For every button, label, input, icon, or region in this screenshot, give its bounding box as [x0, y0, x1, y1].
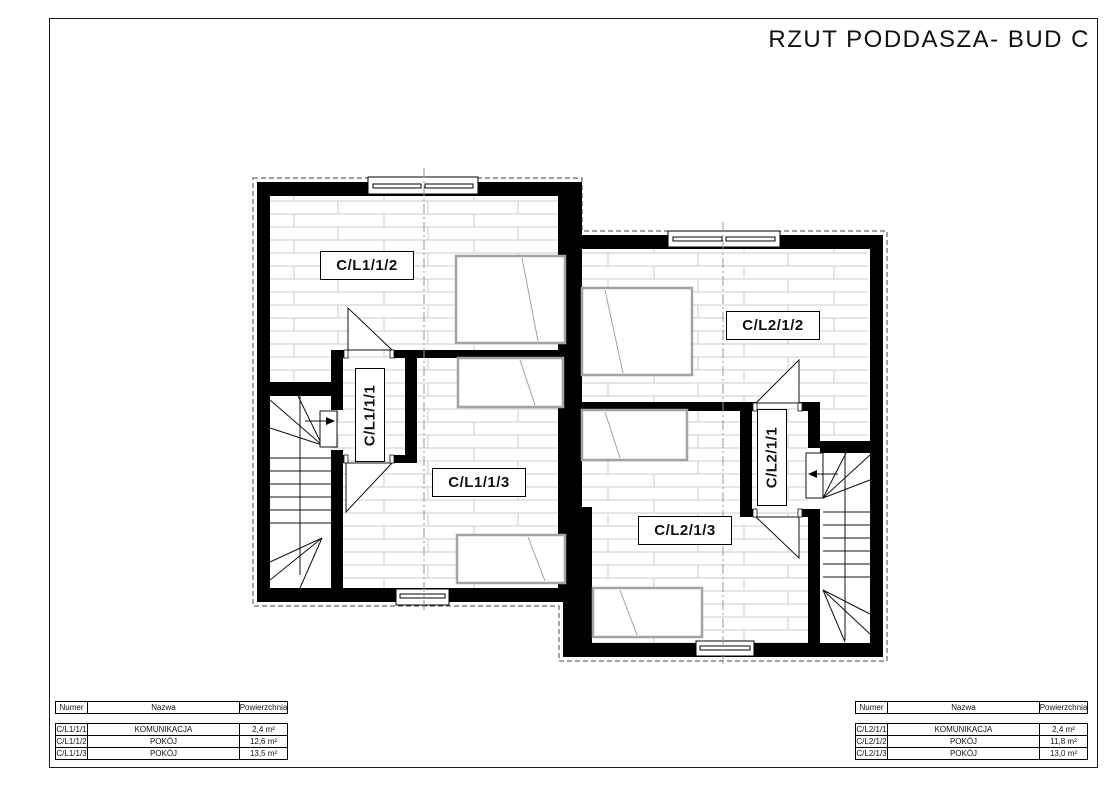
room-number: C/L1/1/3 — [55, 747, 88, 760]
column-header: Powierzchnia — [1039, 701, 1088, 714]
area-table-right: Numer Nazwa Powierzchnia C/L2/1/1 KOMUNI… — [855, 701, 1088, 760]
room-label-l1-3: C/L1/1/3 — [432, 468, 526, 497]
room-label-text: C/L2/1/3 — [654, 522, 716, 539]
room-label-l2-3: C/L2/1/3 — [638, 516, 732, 545]
bed — [458, 358, 563, 407]
table-header-row: Numer Nazwa Powierzchnia — [55, 701, 288, 714]
room-area: 13,5 m² — [239, 747, 288, 760]
window-right-bottom — [696, 641, 754, 656]
table-header-row: Numer Nazwa Powierzchnia — [855, 701, 1088, 714]
table-row: C/L2/1/3 POKÓJ 13,0 m² — [855, 747, 1088, 760]
bed — [457, 535, 565, 583]
room-label-l1-2: C/L1/1/2 — [320, 251, 414, 280]
column-header: Numer — [55, 701, 88, 714]
room-label-text: C/L1/1/2 — [336, 257, 398, 274]
room-name: POKÓJ — [87, 747, 240, 760]
window-right-top — [668, 231, 780, 247]
room-label-l2-2: C/L2/1/2 — [726, 311, 820, 340]
column-header: Powierzchnia — [239, 701, 288, 714]
window-left-top — [368, 177, 478, 194]
column-header: Numer — [855, 701, 888, 714]
room-label-l1-1: C/L1/1/1 — [355, 368, 385, 462]
window-left-bottom — [396, 589, 449, 605]
bed — [593, 588, 702, 637]
room-number: C/L2/1/3 — [855, 747, 888, 760]
drawing-sheet: RZUT PODDASZA- BUD C — [0, 0, 1113, 786]
bed — [582, 410, 687, 460]
room-label-text: C/L1/1/3 — [448, 474, 510, 491]
column-header: Nazwa — [887, 701, 1040, 714]
area-table-left: Numer Nazwa Powierzchnia C/L1/1/1 KOMUNI… — [55, 701, 288, 760]
room-label-text: C/L1/1/1 — [362, 384, 379, 446]
room-label-text: C/L2/1/1 — [764, 427, 781, 489]
floor-plan — [0, 0, 1113, 786]
room-name: POKÓJ — [887, 747, 1040, 760]
room-label-l2-1: C/L2/1/1 — [757, 409, 787, 506]
bed — [456, 256, 565, 343]
column-header: Nazwa — [87, 701, 240, 714]
table-row: C/L1/1/3 POKÓJ 13,5 m² — [55, 747, 288, 760]
bed — [582, 288, 692, 375]
room-label-text: C/L2/1/2 — [742, 317, 804, 334]
room-area: 13,0 m² — [1039, 747, 1088, 760]
